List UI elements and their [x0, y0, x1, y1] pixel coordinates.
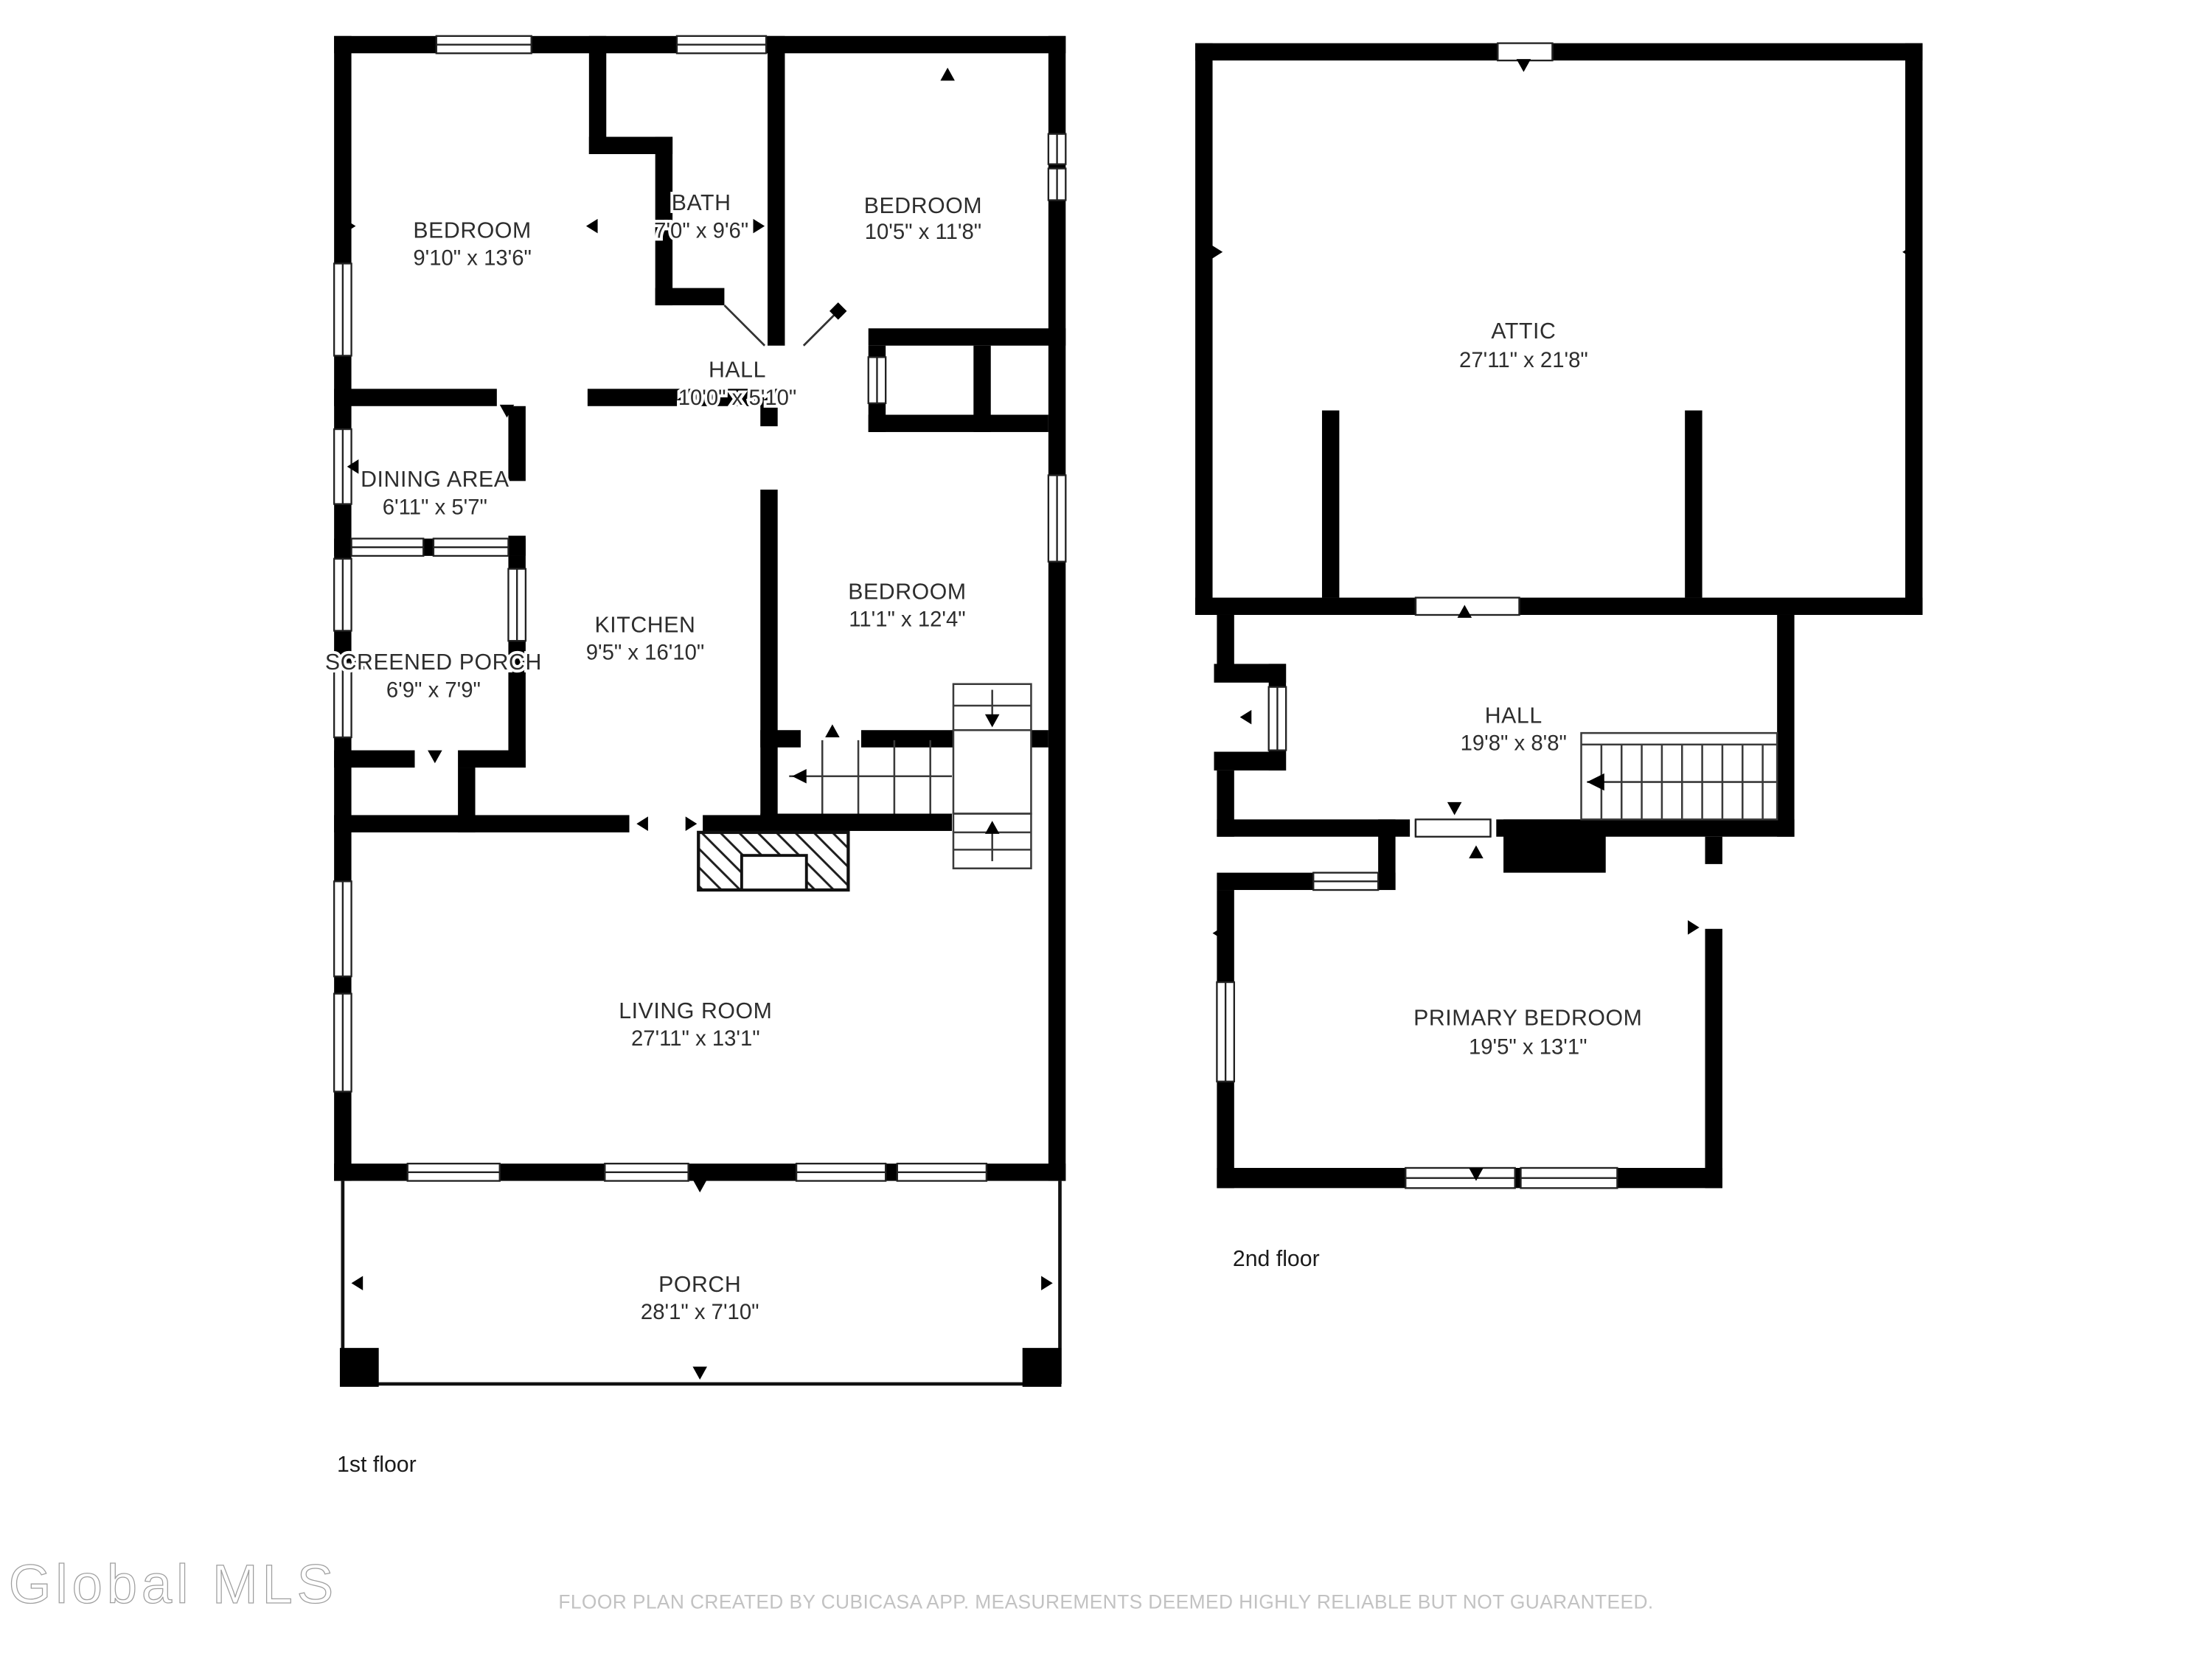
room-name: HALL	[709, 358, 766, 383]
room-label-hall-f2: HALL 19'8" x 8'8"	[1461, 703, 1567, 755]
room-name: KITCHEN	[595, 613, 696, 637]
room-label-bedroom-tl: BEDROOM 9'10" x 13'6"	[413, 218, 532, 270]
window	[334, 559, 351, 631]
room-name: PORCH	[658, 1273, 741, 1297]
closet-slider	[869, 357, 886, 403]
room-dims: 6'9" x 7'9"	[386, 678, 481, 702]
room-dims: 6'11" x 5'7"	[383, 495, 487, 519]
room-label-attic: ATTIC 27'11" x 21'8"	[1459, 319, 1588, 372]
room-label-kitchen: KITCHEN 9'5" x 16'10"	[586, 613, 705, 664]
room-dims: 27'11" x 21'8"	[1459, 348, 1588, 372]
room-dims: 19'8" x 8'8"	[1461, 731, 1567, 756]
room-name: BEDROOM	[848, 580, 966, 605]
closet-slider	[1313, 873, 1378, 890]
porch-post	[1023, 1348, 1062, 1387]
room-label-primary-bedroom: PRIMARY BEDROOM 19'5" x 13'1"	[1413, 1006, 1642, 1060]
room-name: LIVING ROOM	[619, 999, 772, 1023]
window	[677, 36, 766, 53]
floor-plan-canvas: BEDROOM 9'10" x 13'6" BATH 7'0" x 9'6" B…	[0, 0, 2212, 1659]
chimney-box	[1503, 819, 1606, 872]
room-name: BATH	[672, 191, 731, 215]
room-name: DINING AREA	[361, 467, 509, 492]
window	[1048, 169, 1065, 201]
room-dims: 27'11" x 13'1"	[631, 1026, 760, 1051]
room-name: ATTIC	[1491, 319, 1556, 344]
porch-post	[340, 1348, 379, 1387]
window	[334, 994, 351, 1092]
room-label-living: LIVING ROOM 27'11" x 13'1"	[619, 999, 772, 1051]
room-dims: 19'5" x 13'1"	[1469, 1035, 1587, 1060]
fireplace	[698, 832, 848, 890]
window	[334, 881, 351, 976]
room-name: HALL	[1485, 703, 1543, 728]
room-label-bedroom-tr: BEDROOM 10'5" x 11'8"	[864, 194, 982, 244]
window	[334, 263, 351, 355]
room-dims: 11'1" x 12'4"	[849, 608, 965, 632]
window	[1217, 982, 1234, 1082]
window	[408, 1164, 500, 1180]
window	[352, 538, 424, 555]
global-mls-logo: Global MLS	[9, 1554, 338, 1615]
room-name: BEDROOM	[864, 194, 982, 218]
room-name: SCREENED PORCH	[325, 650, 542, 675]
window	[434, 538, 509, 555]
room-label-bedroom-mid: BEDROOM 11'1" x 12'4"	[848, 580, 966, 632]
floor1-door-leaves	[724, 302, 846, 346]
disclaimer-text: FLOOR PLAN CREATED BY CUBICASA APP. MEAS…	[558, 1591, 1653, 1613]
window	[1048, 134, 1065, 164]
window	[437, 36, 532, 53]
room-label-hall-f1: HALL 10'0" x 5'10"	[678, 358, 797, 410]
room-label-porch: PORCH 28'1" x 7'10"	[641, 1273, 759, 1324]
floor1-plan: BEDROOM 9'10" x 13'6" BATH 7'0" x 9'6" B…	[325, 36, 1065, 1477]
window	[605, 1164, 688, 1180]
floor2-plan: ATTIC 27'11" x 21'8" HALL 19'8" x 8'8" P…	[1195, 44, 1922, 1271]
room-dims: 9'10" x 13'6"	[413, 246, 532, 270]
window	[897, 1164, 987, 1180]
room-dims: 10'5" x 11'8"	[865, 220, 981, 244]
room-dims: 10'0" x 5'10"	[678, 386, 797, 410]
window	[1521, 1168, 1618, 1188]
room-name: PRIMARY BEDROOM	[1413, 1006, 1642, 1031]
room-dims: 28'1" x 7'10"	[641, 1300, 759, 1324]
room-name: BEDROOM	[413, 218, 531, 243]
window	[1048, 476, 1065, 562]
window	[1269, 687, 1286, 751]
window	[508, 568, 525, 641]
window	[1405, 1168, 1514, 1188]
window	[796, 1164, 886, 1180]
room-dims: 7'0" x 9'6"	[654, 218, 748, 243]
floor2-label: 2nd floor	[1233, 1247, 1320, 1271]
footer: Global MLS FLOOR PLAN CREATED BY CUBICAS…	[9, 1554, 1654, 1615]
room-label-dining: DINING AREA 6'11" x 5'7"	[361, 467, 509, 519]
floor2-stairs	[1582, 733, 1778, 819]
room-dims: 9'5" x 16'10"	[586, 641, 705, 665]
floor1-label: 1st floor	[337, 1453, 417, 1477]
